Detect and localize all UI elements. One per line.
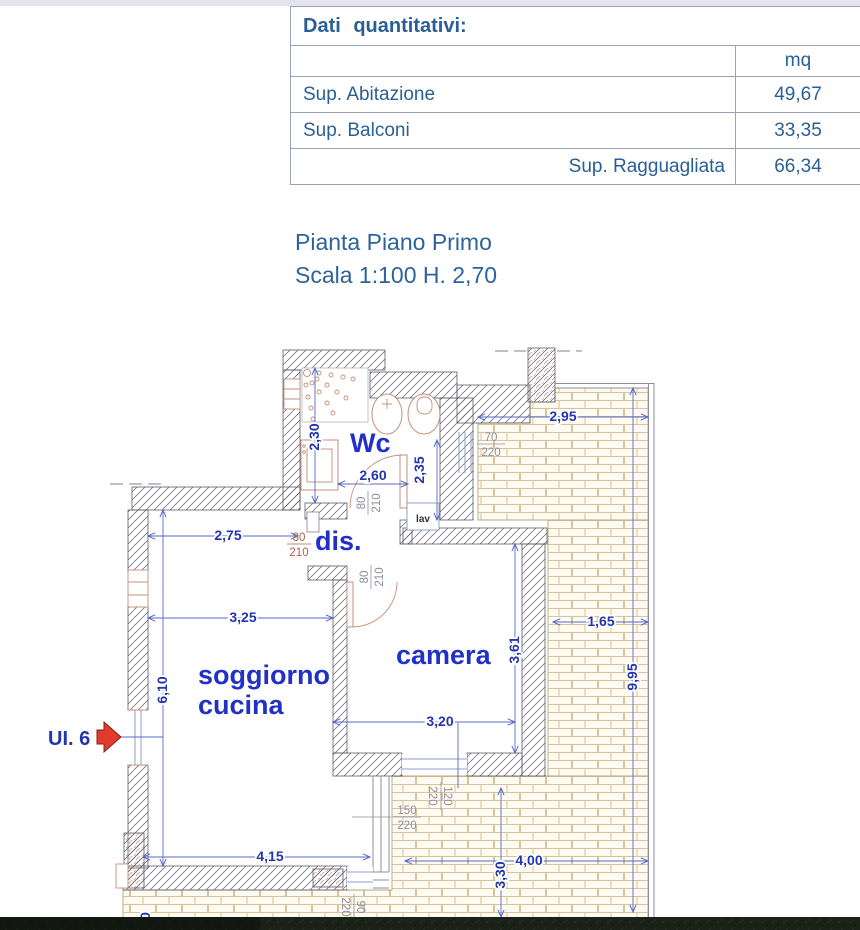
room-label-wc: Wc bbox=[350, 428, 391, 458]
page: Dati quantitativi: mq Sup. Abitazione 49… bbox=[0, 0, 860, 930]
wall-camera-bottom-left bbox=[333, 753, 402, 776]
svg-text:80: 80 bbox=[293, 532, 306, 544]
svg-text:3,30: 3,30 bbox=[492, 861, 508, 888]
balcony-right-edge bbox=[649, 383, 655, 918]
dimension-soggiorno-depth: 6,10 bbox=[154, 510, 170, 866]
svg-text:3,61: 3,61 bbox=[506, 636, 522, 663]
svg-text:150: 150 bbox=[397, 805, 416, 817]
camera-door bbox=[347, 582, 397, 627]
shower bbox=[302, 368, 368, 422]
svg-text:3,25: 3,25 bbox=[229, 609, 256, 625]
dimension-soggiorno-bottom-width: 4,15 bbox=[143, 848, 370, 864]
room-label-soggiorno-2: cucina bbox=[198, 690, 285, 720]
entrance-door-opening bbox=[128, 710, 148, 765]
svg-text:220: 220 bbox=[426, 786, 438, 805]
lav-label: lav bbox=[416, 514, 430, 525]
dimension-wc-width: 2,60 bbox=[338, 467, 408, 484]
wall-left-2 bbox=[128, 605, 148, 710]
window-camera-bottom bbox=[402, 754, 467, 775]
svg-text:80: 80 bbox=[356, 497, 368, 510]
dimension-dis-width: 2,75 bbox=[148, 527, 298, 543]
unit-label: UI. 6 bbox=[48, 728, 90, 750]
svg-text:120: 120 bbox=[441, 786, 453, 805]
svg-text:220: 220 bbox=[481, 447, 500, 459]
ground-strip bbox=[0, 917, 860, 930]
svg-text:220: 220 bbox=[397, 820, 416, 832]
svg-text:220: 220 bbox=[339, 897, 351, 916]
wall-patch-bottom bbox=[313, 869, 343, 887]
dimension-soggiorno-width: 3,25 bbox=[148, 609, 333, 625]
svg-text:1,65: 1,65 bbox=[587, 613, 614, 629]
svg-text:2,30: 2,30 bbox=[306, 423, 322, 450]
window-left-wall bbox=[128, 570, 148, 607]
window-wc-left-wall bbox=[284, 379, 300, 409]
svg-text:2,60: 2,60 bbox=[359, 467, 386, 483]
svg-text:4,00: 4,00 bbox=[515, 852, 542, 868]
washing-machine: lav bbox=[407, 503, 439, 530]
floor-plan: lav 2,95 2,30 2,35 2,60 2,75 bbox=[0, 0, 860, 930]
opening-balcony-bottom bbox=[347, 867, 373, 889]
wall-camera-bottom-pier bbox=[467, 753, 522, 776]
room-label-soggiorno-1: soggiorno bbox=[198, 660, 330, 690]
svg-text:2,35: 2,35 bbox=[411, 456, 427, 483]
toilet bbox=[408, 394, 440, 434]
wall-camera-left-stub bbox=[308, 566, 347, 580]
room-label-dis: dis. bbox=[315, 526, 362, 556]
wall-wc-top bbox=[283, 350, 385, 370]
svg-text:4,15: 4,15 bbox=[256, 848, 283, 864]
svg-text:2,75: 2,75 bbox=[214, 527, 241, 543]
svg-text:210: 210 bbox=[289, 547, 308, 559]
tag-wc-door: 80 210 bbox=[356, 491, 383, 515]
wall-camera-left bbox=[333, 580, 347, 753]
entrance-arrow-icon bbox=[97, 722, 121, 752]
svg-text:6,10: 6,10 bbox=[154, 676, 170, 703]
svg-text:90: 90 bbox=[354, 901, 366, 914]
svg-text:70: 70 bbox=[485, 432, 498, 444]
wall-step-notch bbox=[116, 864, 128, 888]
wall-wc-right bbox=[440, 398, 473, 520]
svg-text:210: 210 bbox=[371, 493, 383, 512]
balcony-bottom bbox=[123, 776, 648, 918]
tag-camera-door: 80 210 bbox=[359, 565, 386, 589]
svg-text:210: 210 bbox=[374, 567, 386, 586]
svg-text:2,95: 2,95 bbox=[549, 408, 576, 424]
wall-camera-right bbox=[522, 544, 545, 776]
svg-text:3,20: 3,20 bbox=[426, 713, 453, 729]
svg-text:9,95: 9,95 bbox=[624, 663, 640, 690]
wall-soggiorno-top bbox=[132, 487, 300, 510]
svg-text:80: 80 bbox=[359, 571, 371, 584]
wall-left-1 bbox=[128, 510, 148, 572]
room-label-camera: camera bbox=[396, 640, 492, 670]
wall-wc-top-step bbox=[370, 372, 457, 398]
balcony-top-edge bbox=[555, 384, 654, 389]
wall-pier bbox=[528, 348, 555, 402]
